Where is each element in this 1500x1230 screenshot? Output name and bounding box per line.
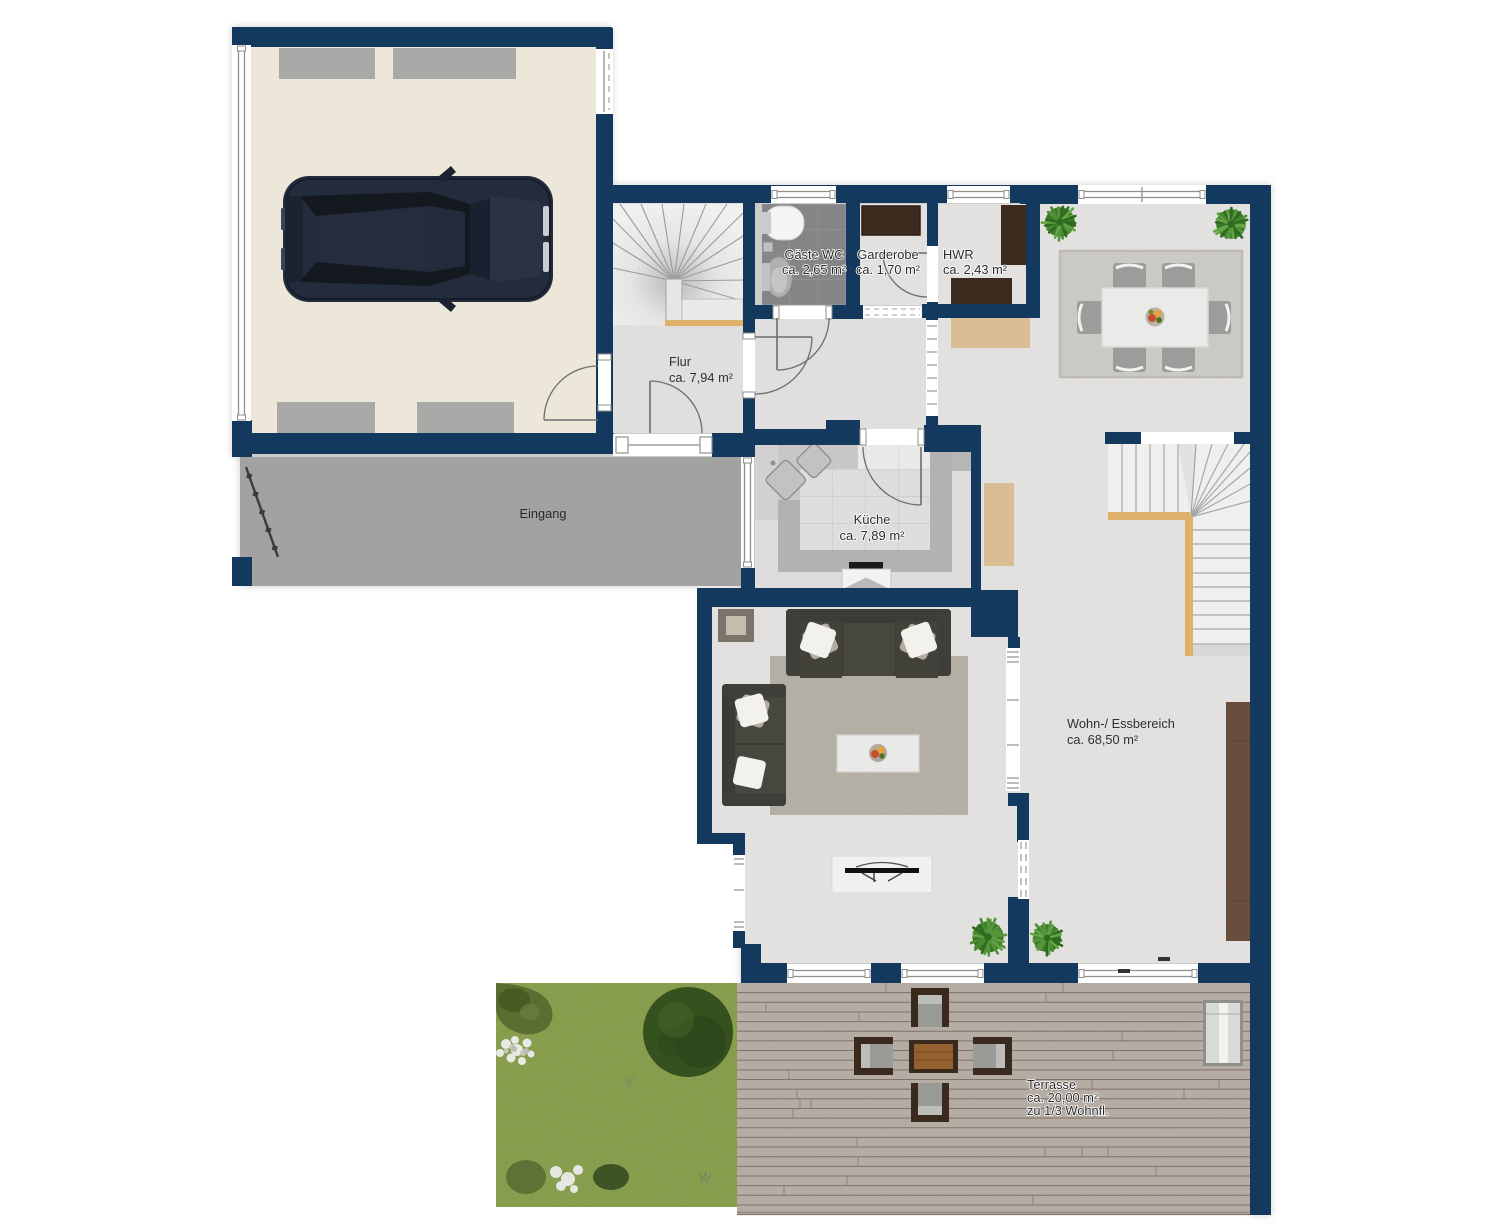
svg-text:Eingang: Eingang bbox=[520, 506, 567, 521]
svg-text:Küche: Küche bbox=[854, 512, 891, 527]
svg-text:ca. 2,65 m²: ca. 2,65 m² bbox=[782, 262, 847, 277]
svg-text:ca. 2,43 m²: ca. 2,43 m² bbox=[943, 262, 1008, 277]
svg-text:ca. 7,89 m²: ca. 7,89 m² bbox=[839, 528, 905, 543]
svg-text:Garderobe: Garderobe bbox=[857, 247, 918, 262]
svg-text:HWR: HWR bbox=[943, 247, 974, 262]
svg-text:ca. 7,94 m²: ca. 7,94 m² bbox=[669, 370, 734, 385]
svg-text:Gäste WC: Gäste WC bbox=[784, 247, 843, 262]
svg-text:Wohn-/ Essbereich: Wohn-/ Essbereich bbox=[1067, 716, 1175, 731]
svg-text:ca. 1,70 m²: ca. 1,70 m² bbox=[856, 262, 921, 277]
svg-text:zu 1/3 Wohnfl.: zu 1/3 Wohnfl. bbox=[1027, 1103, 1109, 1118]
svg-text:ca. 68,50 m²: ca. 68,50 m² bbox=[1067, 732, 1139, 747]
svg-text:Flur: Flur bbox=[669, 354, 692, 369]
